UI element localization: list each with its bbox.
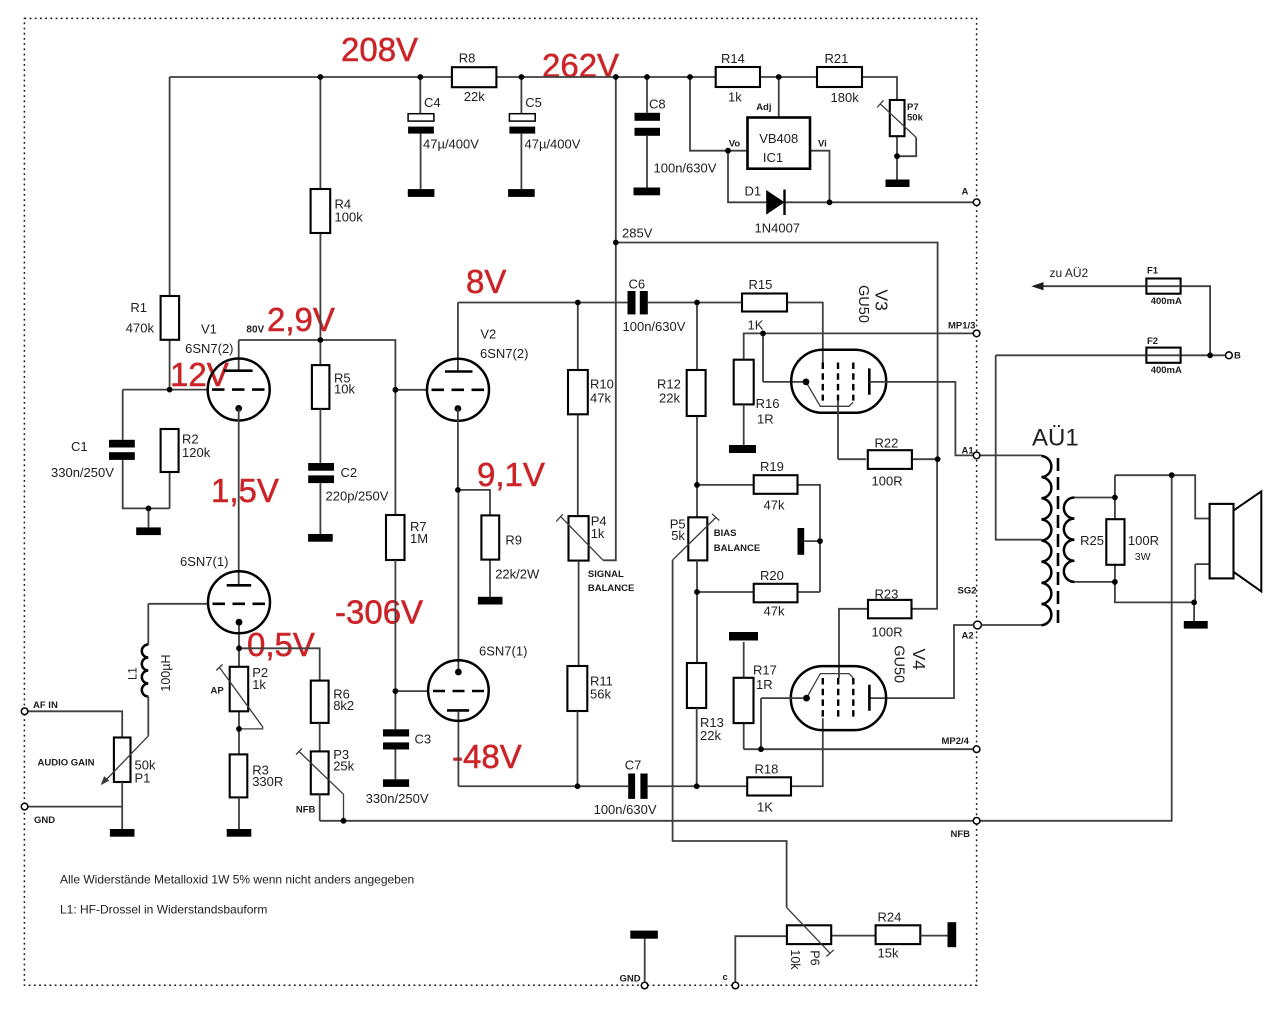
svg-text:C7: C7 (625, 757, 642, 772)
svg-text:6SN7(2): 6SN7(2) (480, 346, 528, 361)
svg-text:56k: 56k (590, 687, 611, 702)
svg-text:208V: 208V (341, 31, 418, 68)
svg-text:47k: 47k (764, 604, 785, 619)
svg-text:470k: 470k (126, 321, 155, 336)
svg-text:80V: 80V (246, 325, 264, 336)
svg-text:D1: D1 (745, 184, 762, 199)
svg-text:R24: R24 (878, 910, 902, 925)
svg-text:2,9V: 2,9V (267, 301, 335, 338)
svg-text:Vi: Vi (818, 139, 827, 150)
svg-text:IC1: IC1 (763, 150, 783, 165)
svg-text:R17: R17 (753, 663, 777, 678)
svg-text:400mA: 400mA (1151, 365, 1182, 376)
svg-text:R25: R25 (1080, 533, 1104, 548)
svg-text:B: B (1234, 351, 1241, 362)
svg-text:100n/630V: 100n/630V (594, 802, 657, 817)
svg-text:SIGNAL: SIGNAL (588, 569, 624, 580)
svg-text:50k: 50k (907, 113, 924, 124)
svg-text:BALANCE: BALANCE (714, 543, 760, 554)
svg-text:V2: V2 (480, 327, 496, 342)
svg-text:R19: R19 (760, 459, 784, 474)
svg-text:R20: R20 (760, 568, 784, 583)
svg-text:L1: L1 (128, 667, 140, 680)
svg-text:C4: C4 (424, 95, 441, 110)
svg-text:0,5V: 0,5V (247, 626, 315, 663)
svg-text:Alle Widerstände Metalloxid 1W: Alle Widerstände Metalloxid 1W 5% wenn n… (60, 873, 414, 887)
svg-text:F1: F1 (1147, 266, 1159, 277)
svg-text:100k: 100k (335, 210, 364, 225)
svg-text:-306V: -306V (335, 594, 423, 631)
svg-text:22k: 22k (659, 391, 680, 406)
svg-text:SG2: SG2 (958, 586, 977, 597)
svg-text:GU50: GU50 (855, 285, 871, 323)
svg-text:1N4007: 1N4007 (755, 221, 801, 236)
svg-text:47k: 47k (764, 498, 785, 513)
svg-text:BIAS: BIAS (714, 528, 737, 539)
svg-text:Vo: Vo (729, 139, 741, 150)
svg-text:330R: 330R (252, 774, 283, 789)
svg-text:100n/630V: 100n/630V (654, 161, 717, 176)
svg-text:R15: R15 (749, 277, 773, 292)
svg-text:6SN7(1): 6SN7(1) (479, 644, 527, 659)
svg-text:P1: P1 (135, 771, 151, 786)
svg-text:GND: GND (620, 974, 641, 985)
svg-text:V1: V1 (201, 322, 217, 337)
svg-text:AF IN: AF IN (33, 700, 58, 711)
svg-text:100R: 100R (872, 625, 903, 640)
svg-text:AP: AP (211, 686, 225, 697)
svg-text:MP1/3: MP1/3 (948, 320, 975, 331)
svg-text:AÜ1: AÜ1 (1032, 425, 1079, 452)
svg-text:R10: R10 (590, 377, 614, 392)
svg-text:V4: V4 (909, 649, 929, 671)
svg-text:1M: 1M (410, 531, 428, 546)
svg-text:1R: 1R (756, 677, 773, 692)
svg-text:8k2: 8k2 (333, 698, 354, 713)
svg-text:R23: R23 (875, 587, 899, 602)
svg-text:F2: F2 (1147, 336, 1158, 347)
svg-text:1k: 1k (252, 677, 266, 692)
svg-text:180k: 180k (831, 90, 860, 105)
svg-text:1k: 1k (591, 526, 605, 541)
svg-text:VB408: VB408 (759, 131, 798, 146)
svg-text:R16: R16 (756, 396, 780, 411)
svg-text:262V: 262V (542, 47, 619, 84)
svg-text:1K: 1K (757, 800, 773, 815)
svg-text:A: A (962, 187, 969, 198)
svg-text:100R: 100R (1128, 533, 1159, 548)
svg-text:C2: C2 (341, 465, 358, 480)
svg-text:120k: 120k (182, 445, 211, 460)
svg-text:12V: 12V (170, 356, 229, 393)
svg-text:22k/2W: 22k/2W (495, 567, 540, 582)
svg-text:10k: 10k (788, 949, 802, 970)
svg-text:MP2/4: MP2/4 (942, 736, 970, 747)
svg-text:R1: R1 (130, 300, 147, 315)
svg-text:-48V: -48V (452, 738, 522, 775)
svg-text:R21: R21 (825, 51, 849, 66)
svg-text:V3: V3 (872, 289, 892, 310)
svg-text:R8: R8 (459, 51, 476, 66)
svg-text:9,1V: 9,1V (477, 456, 545, 493)
svg-text:22k: 22k (464, 89, 485, 104)
svg-text:R22: R22 (875, 436, 899, 451)
svg-text:R9: R9 (505, 533, 522, 548)
svg-text:47k: 47k (590, 391, 611, 406)
svg-text:P6: P6 (808, 950, 822, 965)
svg-text:6SN7(2): 6SN7(2) (185, 341, 233, 356)
svg-text:25k: 25k (333, 758, 354, 773)
svg-text:BALANCE: BALANCE (588, 583, 634, 594)
svg-text:400mA: 400mA (1151, 296, 1182, 307)
svg-text:3W: 3W (1135, 551, 1151, 563)
svg-text:NFB: NFB (951, 829, 971, 840)
svg-text:220p/250V: 220p/250V (326, 489, 389, 504)
svg-text:47µ/400V: 47µ/400V (423, 137, 479, 152)
svg-text:c: c (723, 972, 728, 983)
svg-text:C5: C5 (525, 95, 542, 110)
svg-text:1R: 1R (757, 412, 774, 427)
svg-text:285V: 285V (622, 226, 653, 241)
svg-text:AUDIO GAIN: AUDIO GAIN (38, 758, 95, 769)
svg-text:P7: P7 (907, 102, 919, 113)
svg-text:100R: 100R (872, 474, 903, 489)
svg-text:1K: 1K (748, 318, 764, 333)
svg-text:100n/630V: 100n/630V (623, 319, 686, 334)
svg-text:GND: GND (34, 815, 55, 826)
svg-text:47µ/400V: 47µ/400V (525, 137, 581, 152)
svg-text:6SN7(1): 6SN7(1) (180, 554, 228, 569)
svg-text:C3: C3 (415, 732, 432, 747)
svg-text:R14: R14 (721, 51, 745, 66)
svg-text:C1: C1 (71, 439, 88, 454)
svg-text:22k: 22k (700, 728, 721, 743)
svg-text:8V: 8V (466, 263, 506, 300)
svg-text:zu AÜ2: zu AÜ2 (1050, 266, 1089, 280)
svg-text:C6: C6 (629, 277, 646, 292)
svg-text:5k: 5k (671, 528, 685, 543)
svg-text:GU50: GU50 (891, 645, 907, 683)
svg-text:Adj: Adj (756, 102, 771, 113)
svg-text:15k: 15k (878, 946, 899, 961)
svg-text:330n/250V: 330n/250V (51, 465, 114, 480)
svg-text:NFB: NFB (296, 805, 316, 816)
svg-text:1k: 1k (728, 90, 742, 105)
svg-text:100µH: 100µH (159, 655, 173, 692)
svg-text:A1: A1 (962, 446, 975, 457)
svg-text:L1: HF-Drossel in Widerstandsb: L1: HF-Drossel in Widerstandsbauform (60, 903, 267, 917)
svg-text:R12: R12 (657, 377, 681, 392)
svg-text:1,5V: 1,5V (211, 472, 279, 509)
svg-text:10k: 10k (334, 382, 355, 397)
svg-text:C8: C8 (649, 97, 666, 112)
svg-text:330n/250V: 330n/250V (366, 791, 429, 806)
svg-text:R18: R18 (755, 762, 779, 777)
svg-text:A2: A2 (962, 631, 974, 642)
